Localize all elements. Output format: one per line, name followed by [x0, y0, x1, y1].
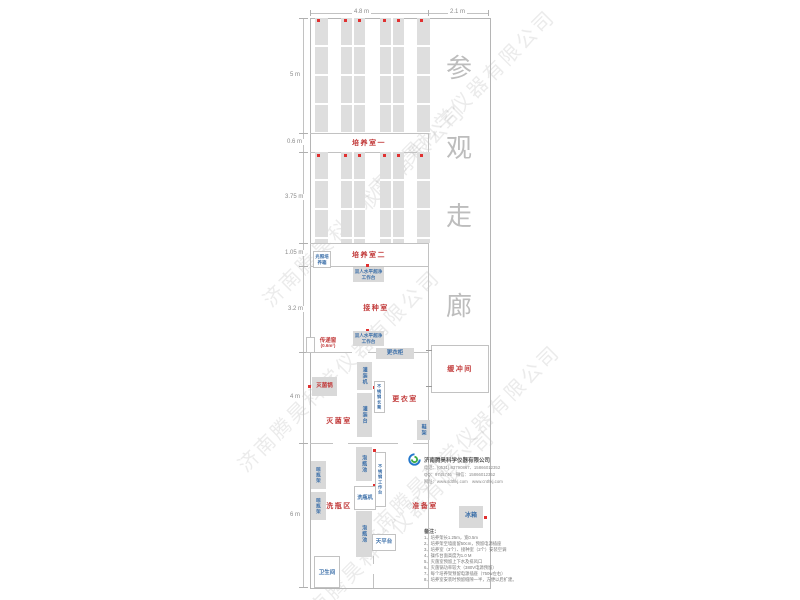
dim-label-left-5: 3.2 m [286, 306, 305, 312]
culture-shelf [341, 18, 365, 133]
bottle-rack-2: 晾瓶架 [311, 492, 326, 520]
power-dot [383, 19, 386, 22]
dim-label-left-1: 5 m [288, 72, 302, 78]
power-dot [308, 385, 311, 388]
corridor-char-1: 参 [444, 48, 474, 85]
power-dot [317, 154, 320, 157]
corridor-char-2: 观 [444, 128, 474, 165]
wall [348, 443, 398, 444]
filling-table: 灌装台 [357, 393, 372, 437]
company-qq: QQ：9745746 微信：15866012352 [424, 472, 495, 478]
notes-title: 备注： [424, 528, 439, 535]
soak-pool-1: 泡瓶池 [356, 447, 372, 481]
fridge: 冰箱 [459, 506, 483, 528]
power-dot [420, 19, 423, 22]
room-label-inoculation: 接种室 [340, 303, 412, 313]
room-label-culture1: 培养室一 [310, 138, 428, 148]
culture-shelf [341, 152, 365, 243]
dim-label-left-6: 4 m [288, 394, 302, 400]
dim-label-left-7: 6 m [288, 512, 302, 518]
dim-tick [299, 18, 308, 19]
wall [310, 443, 333, 444]
dim-label-left-4: 1.05 m [283, 250, 305, 256]
room-label-washing-area: 洗瓶区 [322, 501, 356, 511]
filling-machine: 灌装机 [357, 362, 372, 390]
balance-table: 天平台 [372, 534, 396, 551]
steel-worktable: 不锈钢工作台 [375, 452, 386, 507]
dim-label-top-2: 2.1 m [448, 9, 467, 15]
power-dot [358, 19, 361, 22]
dim-tick [299, 133, 308, 134]
dim-label-top-1: 4.8 m [352, 9, 371, 15]
power-dot [383, 154, 386, 157]
wall [310, 243, 428, 244]
wall [373, 556, 374, 564]
power-dot [317, 19, 320, 22]
dim-tick [299, 243, 308, 244]
room-label-changing: 更衣室 [388, 394, 422, 404]
dim-label-left-2: 0.6 m [285, 139, 304, 145]
culture-shelf [417, 18, 430, 133]
clean-bench-2: 双人水平超净工作台 [353, 331, 384, 346]
culture-shelf [380, 152, 404, 243]
door-tick [426, 386, 432, 387]
wall [373, 574, 374, 588]
soak-pool-2: 泡瓶池 [356, 511, 372, 557]
room-label-sterilization: 灭菌室 [322, 416, 356, 426]
power-dot [484, 516, 487, 519]
culture-shelf [315, 18, 328, 133]
power-dot [420, 154, 423, 157]
room-label-buffer: 缓冲间 [447, 364, 473, 374]
buffer-room: 缓冲间 [431, 345, 489, 393]
light-incubator: 光照培养箱 [313, 251, 331, 268]
company-name: 济南腾昊科学仪器有限公司 [424, 456, 490, 464]
dim-line-left [303, 18, 304, 588]
power-dot [397, 154, 400, 157]
room-label-toilet: 卫生间 [319, 568, 336, 576]
dim-tick [299, 587, 308, 588]
autoclave: 灭菌锅 [312, 377, 337, 396]
dim-tick [299, 266, 308, 267]
company-phone: 电话：(0531) 83790867、15866012352 [424, 465, 500, 471]
clean-bench-1: 双人水平超净工作台 [353, 267, 384, 282]
power-dot [344, 19, 347, 22]
corridor-char-4: 廊 [444, 286, 474, 323]
wall [310, 133, 428, 134]
bottle-rack-1: 晾瓶架 [311, 461, 326, 489]
wall [413, 443, 428, 444]
company-web: 网址：www.sdthkj.com www.cnthkj.com [424, 479, 503, 485]
wall [310, 352, 352, 353]
company-logo-icon [408, 453, 421, 466]
power-dot [397, 19, 400, 22]
power-dot [358, 154, 361, 157]
bottle-washer: 洗瓶机 [354, 486, 376, 510]
toilet-room: 卫生间 [314, 556, 340, 588]
corridor-char-3: 走 [444, 196, 474, 233]
culture-shelf [315, 152, 328, 243]
dim-label-left-3: 3.75 m [283, 194, 305, 200]
dim-tick [310, 10, 311, 16]
culture-shelf [380, 18, 404, 133]
dim-tick [428, 10, 429, 16]
dim-tick [299, 443, 308, 444]
locker: 更衣柜 [376, 348, 414, 359]
shoe-rack: 鞋架 [417, 420, 430, 440]
dim-tick [299, 152, 308, 153]
culture-shelf [417, 152, 430, 243]
room-label-preparation: 准备室 [408, 501, 442, 511]
power-dot [344, 154, 347, 157]
dim-tick [488, 10, 489, 16]
steel-bench: 不锈钢长凳 [374, 381, 385, 413]
door-tick [426, 350, 432, 351]
pass-window-size: (0.6m²) [314, 343, 342, 348]
floor-plan-canvas: 济南腾昊科学仪器有限公司 济南腾昊科学仪器有限公司 济南腾昊科学仪器有限公司 济… [0, 0, 800, 600]
note-item-8: 8、培养室安装时预留缝隙一半，方便以后扩建。 [424, 577, 517, 583]
